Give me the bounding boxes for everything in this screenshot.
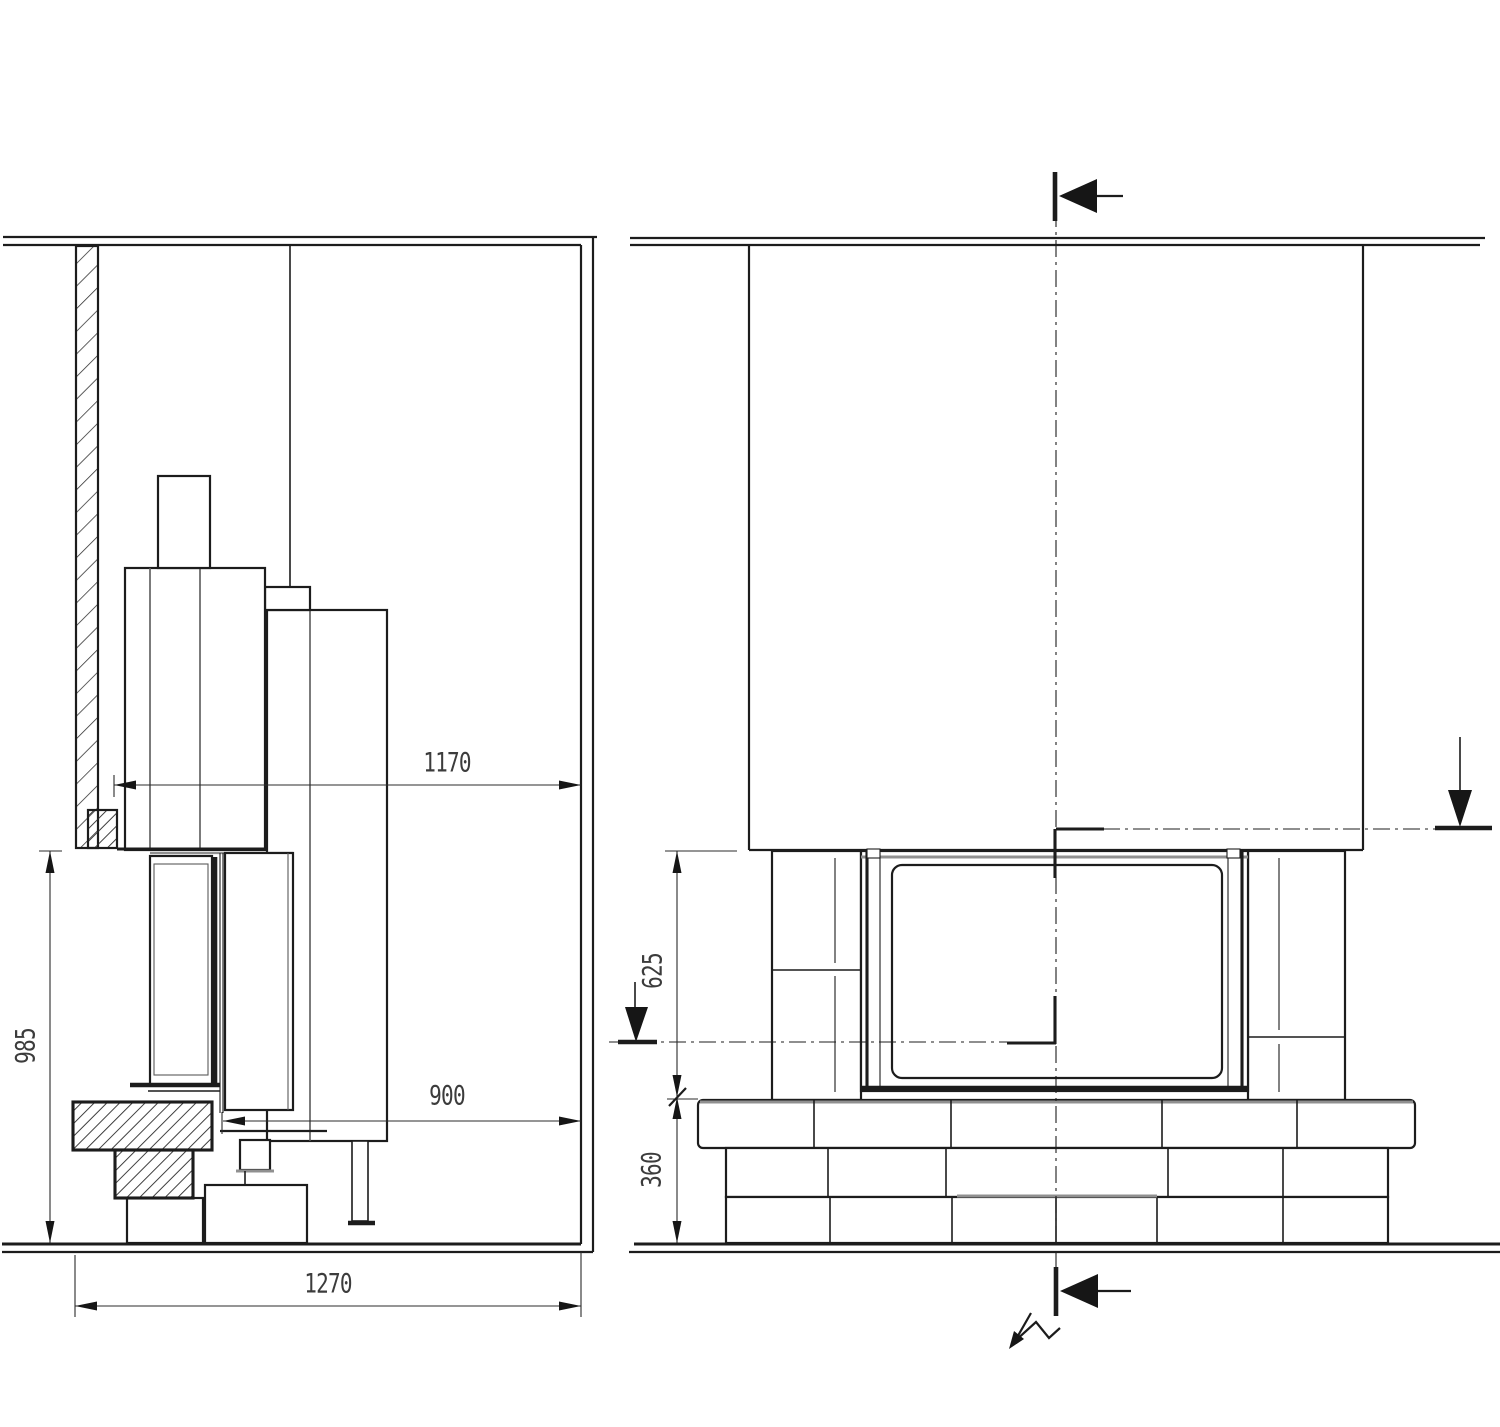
left-door-frame	[150, 856, 212, 1085]
left-wall-block	[88, 810, 117, 848]
dim-1270-arrow-left	[75, 1302, 97, 1311]
dim-985-label: 985	[11, 1028, 42, 1064]
right-firebox-corner-notch-left	[867, 849, 880, 858]
right-firebox-glass	[892, 865, 1222, 1078]
right-section-squiggle	[1015, 1313, 1060, 1341]
technical-drawing-svg: .hwfill{fill:url(#hatchWall)} .hbfill{fi…	[0, 0, 1500, 1427]
left-bench-block	[115, 1150, 193, 1198]
dim-1170-label: 1170	[423, 748, 471, 779]
fireplace-installation-drawing: .hwfill{fill:url(#hatchWall)} .hbfill{fi…	[0, 0, 1500, 1427]
dim-900-arrow-left	[223, 1117, 245, 1126]
right-level-marker-left-triangle	[625, 1007, 648, 1042]
dim-360-label: 360	[637, 1152, 668, 1188]
left-base-block-rear	[205, 1185, 307, 1243]
dim-985-arrow-bottom	[46, 1221, 55, 1243]
dim-985-arrow-top	[46, 851, 55, 873]
right-section-marker-bottom-arrow	[1060, 1274, 1098, 1308]
left-door-rear-box	[225, 853, 293, 1110]
left-wall-section	[76, 246, 98, 848]
left-leg	[352, 1141, 368, 1221]
dim-625-label: 625	[638, 953, 669, 989]
left-flue-pipe	[158, 476, 210, 568]
dim-1170-arrow-right	[559, 781, 581, 790]
right-column-left	[772, 851, 861, 1100]
right-level-marker-right-triangle	[1448, 790, 1472, 827]
dim-900-arrow-right	[559, 1117, 581, 1126]
dim-1270-arrow-right	[559, 1302, 581, 1311]
left-bench-slab	[73, 1102, 212, 1150]
right-firebox-corner-notch-right	[1227, 849, 1240, 858]
dim-625-arrow-top	[673, 851, 682, 873]
dim-1270-label: 1270	[304, 1269, 352, 1300]
left-base-block-front	[127, 1198, 203, 1243]
right-hearth-course-3	[726, 1197, 1388, 1243]
left-upper-casing	[125, 568, 265, 850]
right-column-right	[1248, 851, 1345, 1100]
dim-900-label: 900	[429, 1081, 465, 1112]
right-section-marker-top-arrow	[1059, 179, 1097, 213]
right-hearth-course-2	[726, 1148, 1388, 1197]
left-top-step	[265, 587, 310, 610]
left-pedestal	[240, 1140, 270, 1170]
dim-360-arrow-bottom	[673, 1221, 682, 1243]
